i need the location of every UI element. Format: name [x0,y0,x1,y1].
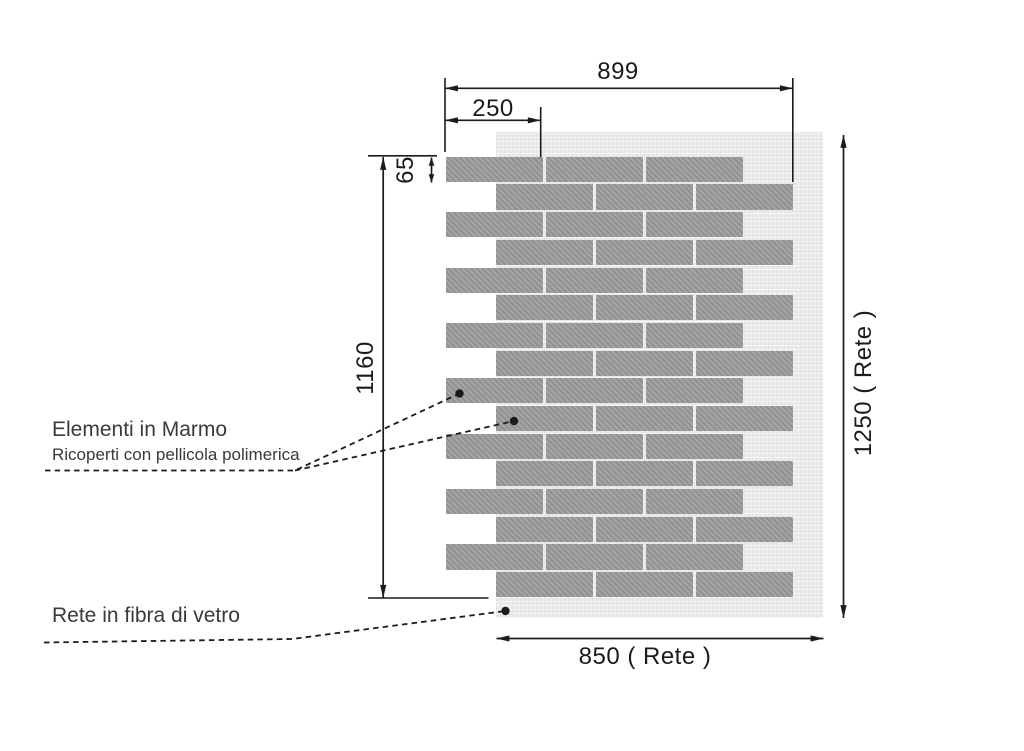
dimension-label-mesh-width: 850 ( Rete ) [579,643,712,671]
callout-marble-title: Elementi in Marmo [52,418,227,442]
dimension-label-element-width: 250 [472,95,514,123]
dimension-label-element-height: 65 [392,156,420,184]
leader-line-marble-2 [295,421,514,471]
technical-drawing-canvas: 899 250 65 1160 1250 ( Rete ) 850 ( Rete… [0,0,1024,751]
callout-marble-subtitle: Ricoperti con pellicola polimerica [52,445,300,465]
leader-dot-marble-1 [455,389,463,397]
dimension-label-mesh-height: 1250 ( Rete ) [850,310,878,457]
leader-dot-marble-2 [510,417,518,425]
leader-dot-mesh [501,607,509,615]
dimension-label-overall-width: 899 [597,58,639,86]
dimension-label-wall-height: 1160 [352,341,380,395]
callout-mesh-label: Rete in fibra di vetro [52,604,240,628]
